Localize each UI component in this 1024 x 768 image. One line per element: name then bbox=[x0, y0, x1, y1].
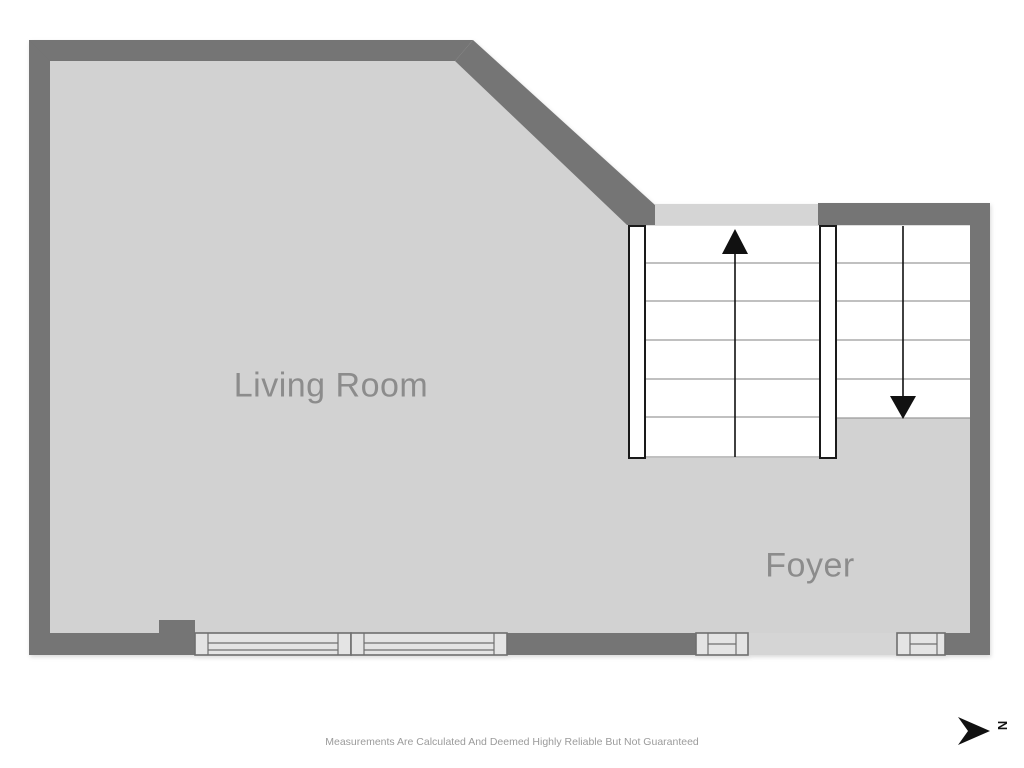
left-wall bbox=[29, 40, 50, 655]
top-wall bbox=[29, 40, 473, 61]
floorplan-canvas bbox=[0, 0, 1024, 768]
bottom-wall-middle bbox=[507, 633, 696, 655]
window bbox=[696, 633, 748, 655]
stair-top-wall bbox=[818, 203, 990, 225]
bottom-wall-right bbox=[945, 633, 990, 655]
disclaimer-text: Measurements Are Calculated And Deemed H… bbox=[325, 736, 699, 748]
foyer-label: Foyer bbox=[765, 547, 854, 586]
window bbox=[897, 633, 945, 655]
north-label: N bbox=[995, 721, 1010, 730]
window bbox=[351, 633, 507, 655]
living-room-floor bbox=[50, 61, 629, 633]
north-arrow-icon bbox=[950, 710, 1020, 755]
bottom-wall-pilaster bbox=[159, 620, 195, 633]
compass: N bbox=[950, 710, 1020, 755]
stair-top-opening bbox=[655, 204, 818, 225]
bottom-wall-left bbox=[29, 633, 195, 655]
stair-center-stringer bbox=[820, 226, 836, 458]
entry-opening bbox=[748, 633, 897, 655]
window bbox=[195, 633, 351, 655]
living-room-label: Living Room bbox=[234, 367, 428, 406]
stair-left-stringer bbox=[629, 226, 645, 458]
stair-up-run bbox=[629, 226, 836, 458]
floorplan-page: Living Room Foyer Measurements Are Calcu… bbox=[0, 0, 1024, 768]
right-wall bbox=[970, 203, 990, 655]
